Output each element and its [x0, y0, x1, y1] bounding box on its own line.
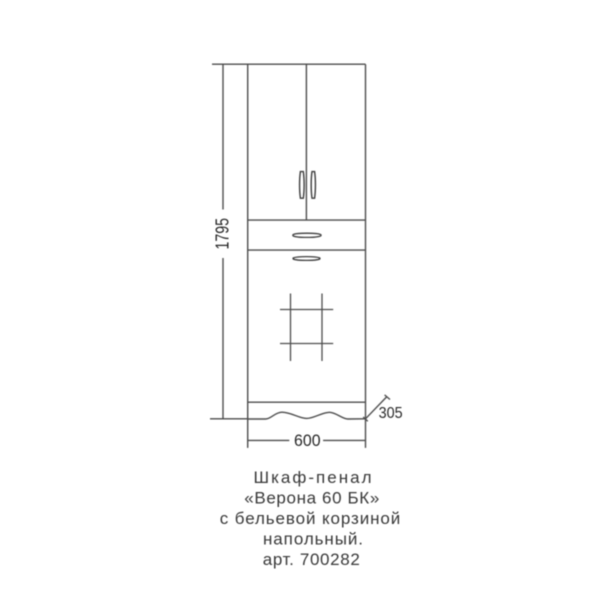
- svg-text:Шкаф-пенал: Шкаф-пенал: [254, 468, 372, 487]
- svg-text:«Верона 60 БК»: «Верона 60 БК»: [244, 489, 379, 508]
- svg-text:1795: 1795: [212, 218, 232, 250]
- svg-text:напольный.: напольный.: [263, 530, 363, 549]
- svg-text:арт. 700282: арт. 700282: [263, 550, 360, 569]
- svg-text:305: 305: [379, 405, 403, 422]
- svg-text:600: 600: [294, 431, 321, 450]
- svg-text:с бельевой корзиной: с бельевой корзиной: [220, 509, 401, 528]
